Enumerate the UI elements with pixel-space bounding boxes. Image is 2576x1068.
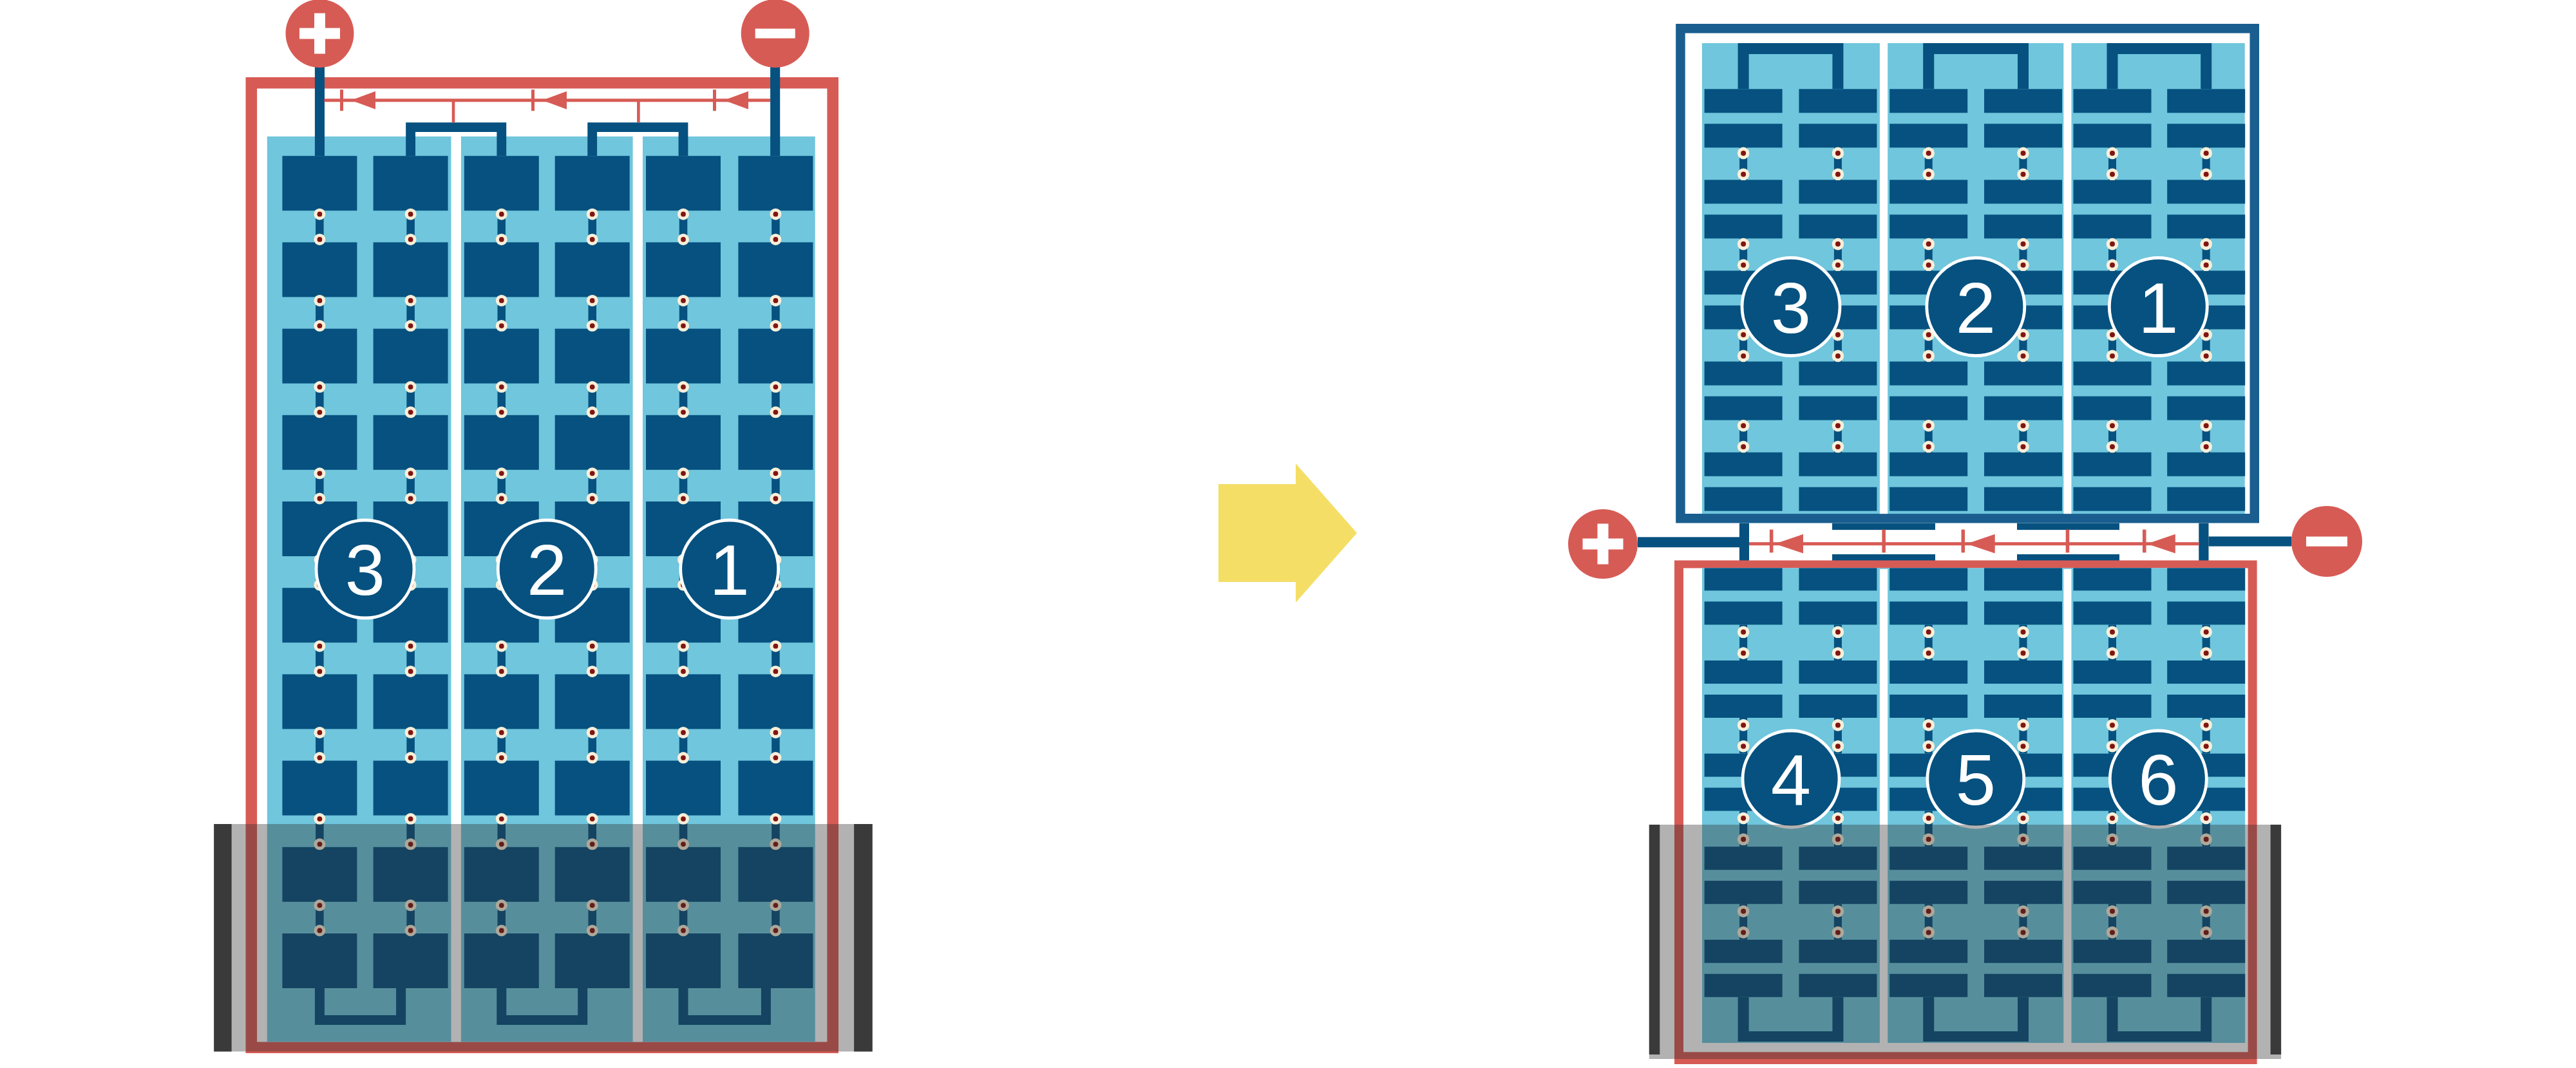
svg-text:3: 3 <box>1771 268 1811 348</box>
svg-text:2: 2 <box>1956 268 1996 348</box>
svg-text:3: 3 <box>345 530 385 610</box>
svg-text:2: 2 <box>527 530 567 610</box>
svg-text:1: 1 <box>710 530 750 610</box>
svg-text:5: 5 <box>1956 740 1996 820</box>
svg-text:1: 1 <box>2138 268 2178 348</box>
svg-text:6: 6 <box>2138 740 2178 820</box>
svg-text:4: 4 <box>1771 740 1811 820</box>
